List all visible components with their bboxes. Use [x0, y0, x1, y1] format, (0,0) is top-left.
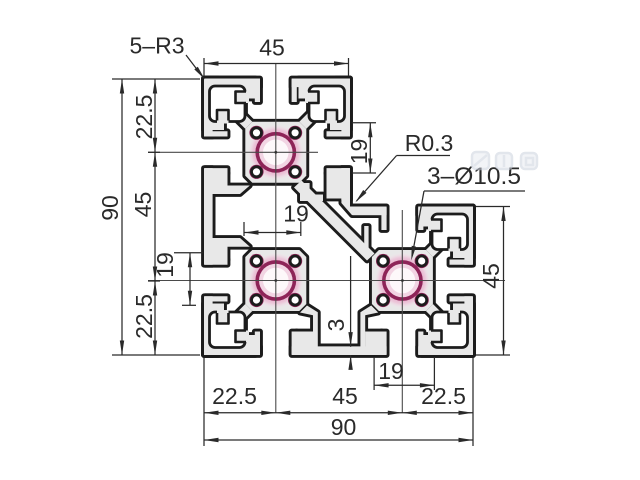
svg-text:90: 90 — [331, 414, 357, 440]
svg-text:45: 45 — [130, 192, 156, 218]
svg-text:45: 45 — [478, 263, 504, 289]
svg-text:19: 19 — [283, 201, 309, 227]
svg-text:22.5: 22.5 — [131, 95, 157, 140]
svg-text:22.5: 22.5 — [421, 383, 466, 409]
svg-text:22.5: 22.5 — [131, 294, 157, 339]
svg-text:19: 19 — [152, 252, 178, 278]
svg-text:3: 3 — [323, 319, 349, 332]
svg-text:19: 19 — [378, 358, 404, 384]
svg-text:45: 45 — [259, 35, 285, 61]
svg-text:5–R3: 5–R3 — [130, 33, 185, 59]
svg-text:19: 19 — [346, 139, 372, 165]
svg-text:90: 90 — [97, 195, 123, 221]
svg-text:45: 45 — [332, 383, 358, 409]
svg-text:22.5: 22.5 — [212, 383, 257, 409]
svg-text:R0.3: R0.3 — [405, 130, 454, 156]
